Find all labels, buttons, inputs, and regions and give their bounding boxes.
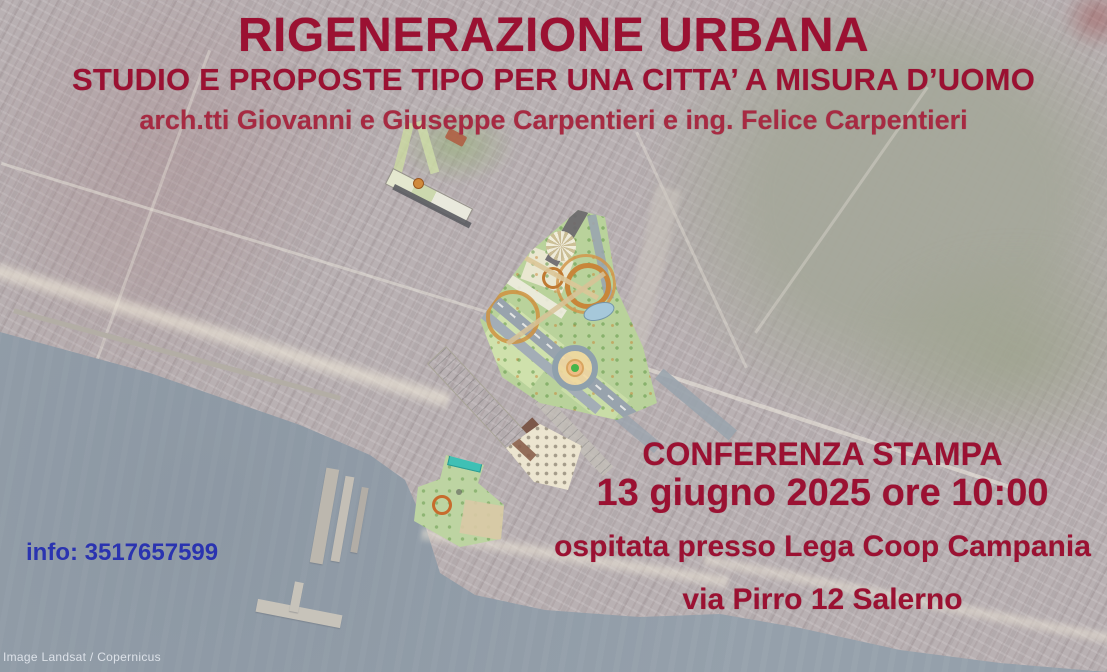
garden-ring [432, 495, 452, 515]
plaza-patch [459, 499, 508, 540]
masterplan-north-strip [383, 142, 513, 226]
contact-info: info: 3517657599 [26, 539, 218, 567]
poster-title: RIGENERAZIONE URBANA [0, 12, 1107, 60]
headline-block: RIGENERAZIONE URBANA STUDIO E PROPOSTE T… [0, 12, 1107, 134]
event-host: ospitata presso Lega Coop Campania [538, 529, 1107, 565]
map-attribution: Image Landsat / Copernicus [3, 650, 161, 664]
event-poster: RIGENERAZIONE URBANA STUDIO E PROPOSTE T… [0, 0, 1107, 672]
plan-feature-dot [413, 178, 424, 189]
event-address: via Pirro 12 Salerno [538, 582, 1107, 618]
plan-feature-dot [456, 489, 462, 495]
event-details-block: CONFERENZA STAMPA 13 giugno 2025 ore 10:… [538, 437, 1107, 618]
event-datetime: 13 giugno 2025 ore 10:00 [538, 472, 1107, 516]
poster-authors: arch.tti Giovanni e Giuseppe Carpentieri… [0, 107, 1107, 134]
poster-subtitle: STUDIO E PROPOSTE TIPO PER UNA CITTA’ A … [0, 64, 1107, 95]
event-label: CONFERENZA STAMPA [538, 437, 1107, 472]
station-canopy [427, 346, 529, 453]
